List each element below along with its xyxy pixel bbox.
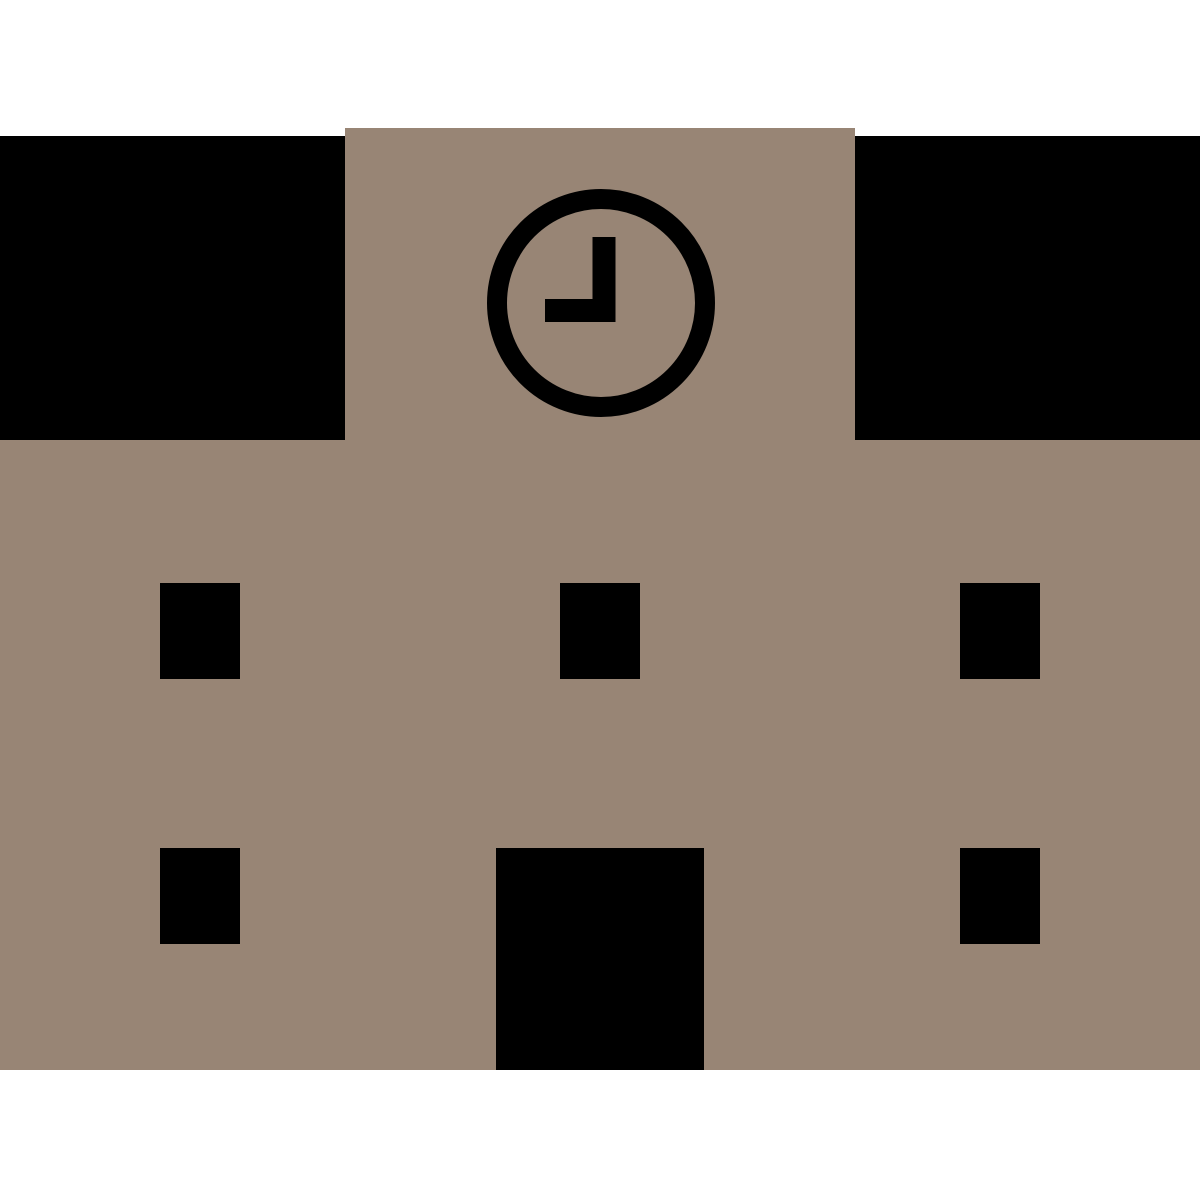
roof-block-right bbox=[855, 136, 1200, 440]
clock-icon bbox=[487, 189, 715, 417]
clock-hands-icon bbox=[545, 237, 604, 311]
window-top-left bbox=[160, 583, 240, 679]
window-bottom-left bbox=[160, 848, 240, 944]
window-bottom-right bbox=[960, 848, 1040, 944]
door bbox=[496, 848, 704, 1070]
window-top-right bbox=[960, 583, 1040, 679]
roof-block-left bbox=[0, 136, 345, 440]
school-building-icon bbox=[0, 0, 1200, 1200]
window-top-center bbox=[560, 583, 640, 679]
